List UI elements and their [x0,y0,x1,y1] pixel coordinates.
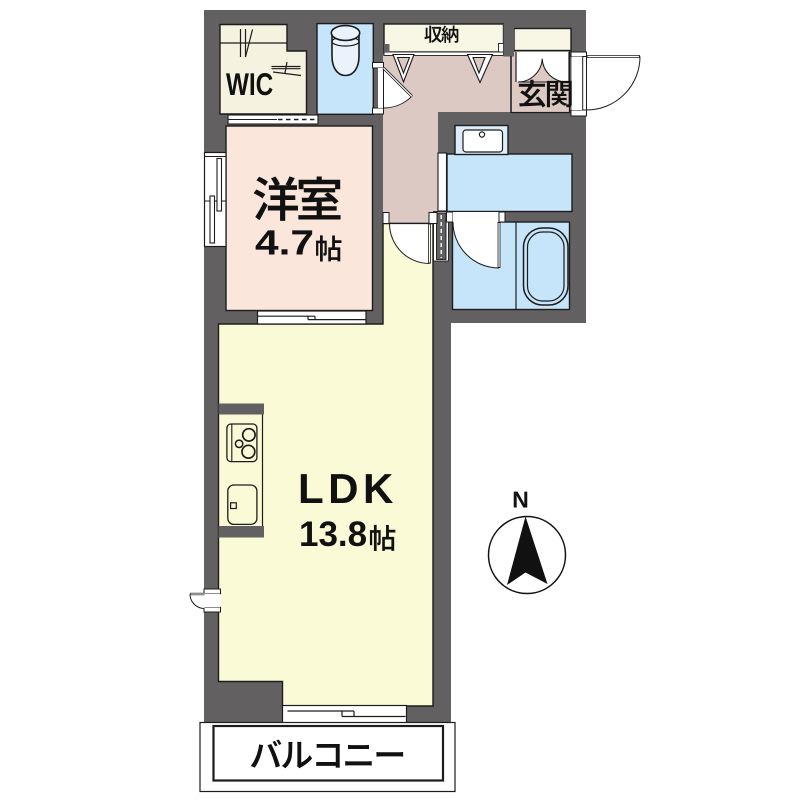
svg-text:13.8: 13.8 [299,515,367,554]
